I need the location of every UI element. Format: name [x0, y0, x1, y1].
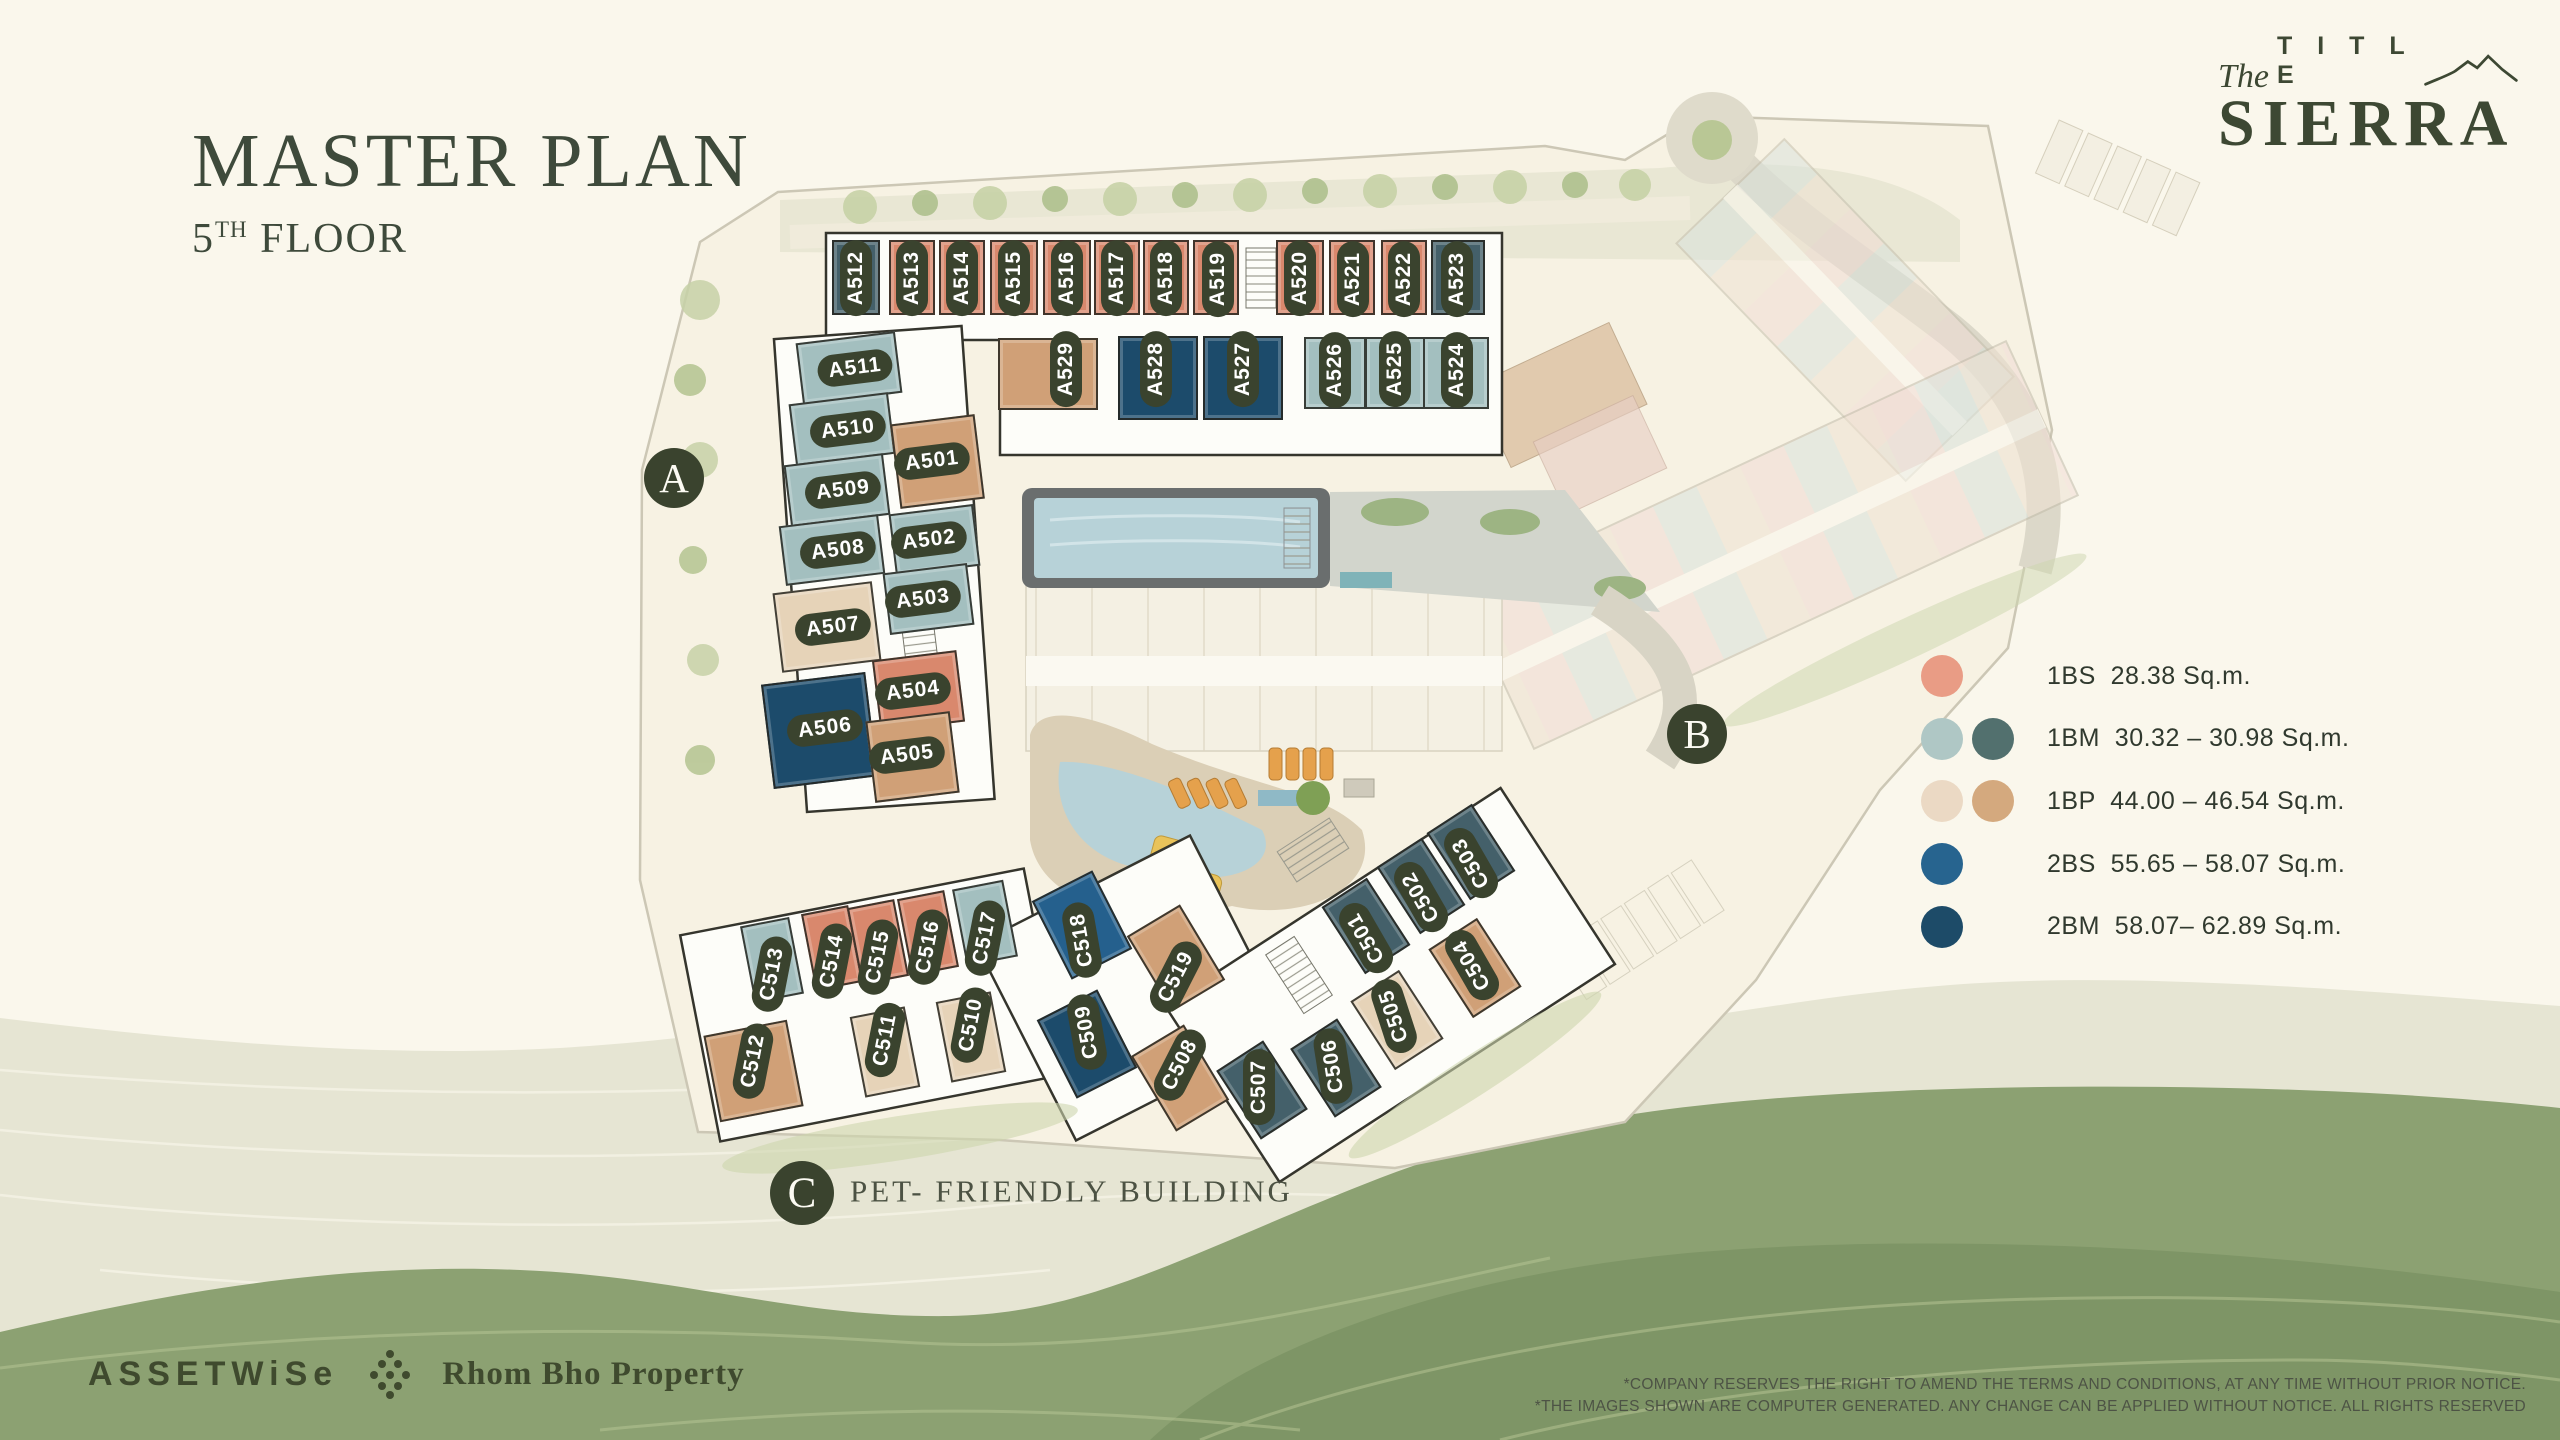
legend-label-1BS: 1BS 28.38 Sq.m. [2047, 662, 2251, 691]
legend-swatch-icon [1921, 718, 1963, 760]
unit-label-A512: A512 [840, 240, 872, 316]
pool-steps [1284, 508, 1310, 568]
legend-swatches-2BS [1921, 843, 2016, 885]
mountain-icon [2424, 50, 2518, 92]
legend-row-1BM: 1BM 30.32 – 30.98 Sq.m. [1921, 708, 2349, 770]
unit-label-A523: A523 [1441, 241, 1473, 317]
amenity-tree [1296, 781, 1330, 815]
legend-label-2BM: 2BM 58.07– 62.89 Sq.m. [2047, 912, 2342, 941]
dotted-mat [1258, 790, 1302, 806]
legend-swatch-icon [1921, 780, 1963, 822]
unit-label-A524: A524 [1441, 332, 1473, 408]
unit-label-A527: A527 [1227, 331, 1259, 407]
legend-swatch-icon [1972, 718, 2014, 760]
deck-planting-2 [1480, 509, 1540, 535]
unit-label-C507: C507 [1243, 1049, 1275, 1125]
legend-row-2BS: 2BS 55.65 – 58.07 Sq.m. [1921, 833, 2345, 895]
legend-swatches-2BM [1921, 906, 2016, 948]
disclaimer-line-1: *COMPANY RESERVES THE RIGHT TO AMEND THE… [1535, 1374, 2526, 1396]
legend-swatches-1BS [1921, 655, 2016, 697]
building-marker-C: C [770, 1161, 834, 1225]
bench [1344, 779, 1374, 797]
unit-label-A525: A525 [1379, 331, 1411, 407]
ne-parking [2036, 120, 2200, 236]
legend-swatch-icon [1921, 655, 1963, 697]
assetwise-logo: ASSETWiSe [88, 1355, 338, 1394]
legend-swatch-icon [1972, 780, 2014, 822]
ne-plaza-tree [1692, 120, 1732, 160]
legend-row-1BS: 1BS 28.38 Sq.m. [1921, 645, 2251, 707]
developer-logos: ASSETWiSe Rhom Bho Property [88, 1348, 745, 1400]
pet-friendly-note: PET- FRIENDLY BUILDING [850, 1174, 1293, 1210]
unit-label-A513: A513 [896, 240, 928, 316]
page-title: MASTER PLAN [192, 118, 751, 205]
main-pool [1034, 498, 1318, 578]
legend-label-1BM: 1BM 30.32 – 30.98 Sq.m. [2047, 724, 2349, 753]
deck-planting-1 [1361, 498, 1429, 526]
unit-label-A516: A516 [1051, 240, 1083, 316]
brand-title-word: T I T L E [2277, 32, 2416, 92]
building-marker-A: A [644, 448, 704, 508]
legend-swatches-1BM [1921, 718, 2016, 760]
rhombho-logo: Rhom Bho Property [442, 1356, 744, 1393]
master-plan-poster: A512A513A514A515A516A517A518A519A520A521… [0, 0, 2560, 1440]
unit-label-A514: A514 [946, 240, 978, 316]
disclaimer: *COMPANY RESERVES THE RIGHT TO AMEND THE… [1535, 1374, 2526, 1418]
unit-label-A521: A521 [1337, 241, 1369, 317]
building-marker-B: B [1667, 704, 1727, 764]
legend-label-1BP: 1BP 44.00 – 46.54 Sq.m. [2047, 787, 2345, 816]
title-block: MASTER PLAN 5TH FLOOR [192, 118, 751, 263]
unit-label-A519: A519 [1202, 241, 1234, 317]
unit-label-A526: A526 [1319, 332, 1351, 408]
unit-label-A515: A515 [998, 240, 1030, 316]
legend-swatch-icon [1921, 906, 1963, 948]
floor-subtitle: 5TH FLOOR [192, 215, 751, 263]
rhombho-tree-icon [368, 1348, 412, 1400]
central-corridor [1026, 656, 1502, 686]
legend-swatch-icon [1921, 843, 1963, 885]
legend-row-1BP: 1BP 44.00 – 46.54 Sq.m. [1921, 770, 2345, 832]
brand-logo: The T I T L E SIERRA [2218, 48, 2518, 156]
stair-core-a [1246, 248, 1276, 308]
unit-label-A520: A520 [1284, 240, 1316, 316]
spa-pool [1340, 572, 1392, 588]
unit-label-A517: A517 [1101, 240, 1133, 316]
unit-block-A529 [998, 338, 1098, 410]
legend-swatches-1BP [1921, 780, 2016, 822]
brand-top-row: The T I T L E [2218, 48, 2518, 92]
legend-row-2BM: 2BM 58.07– 62.89 Sq.m. [1921, 896, 2342, 958]
disclaimer-line-2: *THE IMAGES SHOWN ARE COMPUTER GENERATED… [1535, 1396, 2526, 1418]
legend-label-2BS: 2BS 55.65 – 58.07 Sq.m. [2047, 850, 2345, 879]
unit-label-A529: A529 [1050, 331, 1082, 407]
unit-label-A528: A528 [1140, 331, 1172, 407]
unit-label-A522: A522 [1388, 241, 1420, 317]
brand-name: SIERRA [2218, 92, 2518, 156]
unit-label-A518: A518 [1150, 240, 1182, 316]
